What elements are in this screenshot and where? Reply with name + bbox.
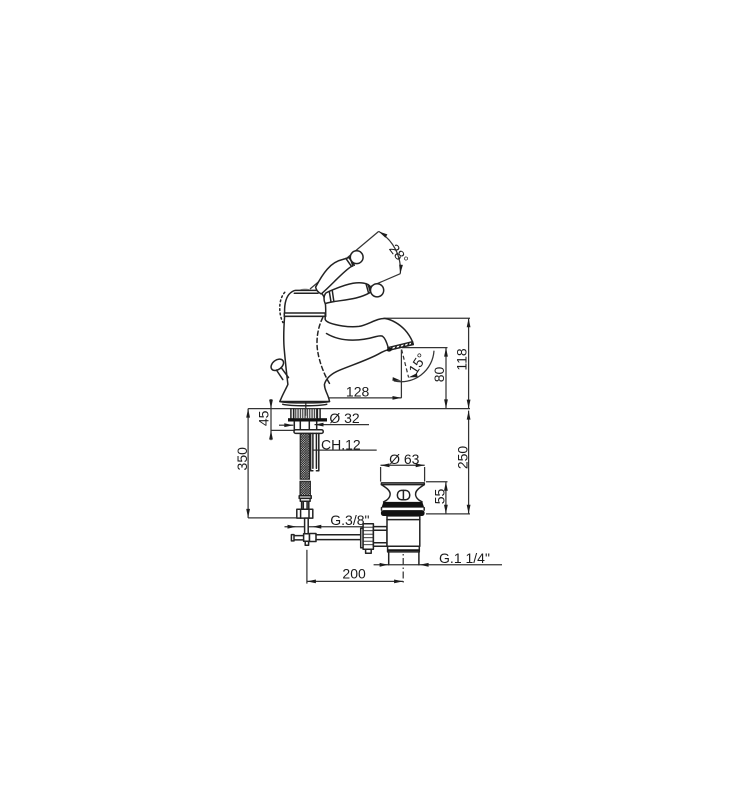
- svg-text:200: 200: [342, 565, 366, 581]
- svg-text:55: 55: [432, 489, 448, 505]
- svg-text:350: 350: [234, 447, 250, 471]
- svg-text:80: 80: [431, 367, 447, 383]
- svg-text:G.1 1/4": G.1 1/4": [439, 550, 490, 566]
- svg-text:CH.12: CH.12: [321, 437, 361, 453]
- svg-text:128: 128: [346, 383, 370, 399]
- svg-text:45: 45: [256, 410, 272, 426]
- svg-text:Ø 63: Ø 63: [389, 451, 420, 467]
- svg-text:Ø 32: Ø 32: [329, 410, 360, 426]
- svg-text:118: 118: [454, 348, 470, 371]
- svg-text:250: 250: [455, 446, 471, 470]
